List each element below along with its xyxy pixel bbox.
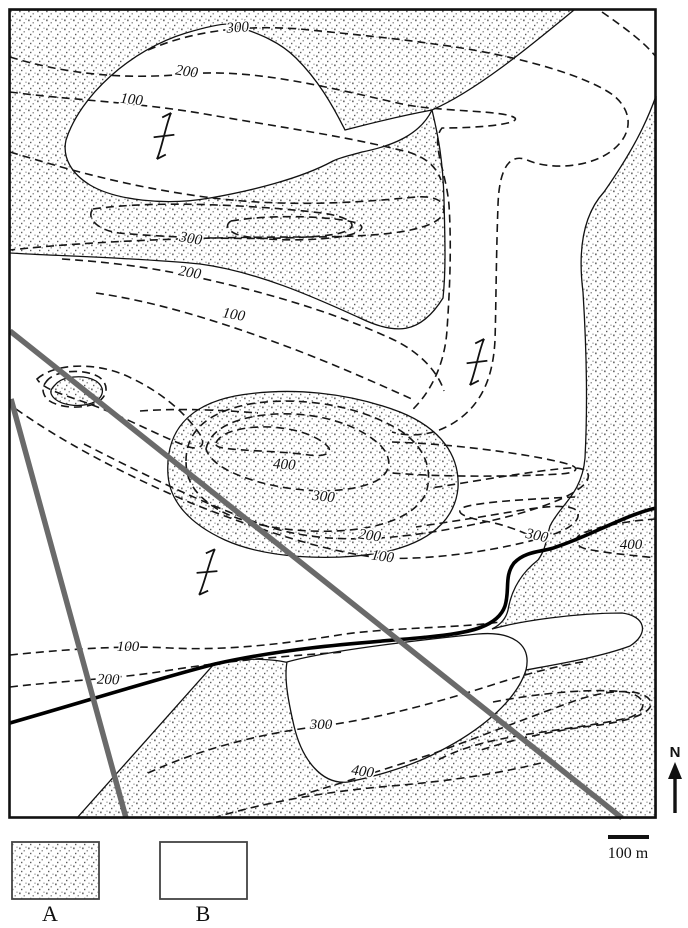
- contour-label: 100: [119, 91, 144, 110]
- north-arrow-icon: N: [668, 744, 682, 813]
- contour-label: 300: [310, 488, 336, 506]
- contour-label: 100: [370, 548, 395, 567]
- contour-label: 100: [117, 639, 140, 655]
- legend-label-a: A: [42, 901, 58, 926]
- contour-label: 200: [174, 63, 199, 82]
- geologic-map-figure: 3002001003002001004003002001003004001002…: [0, 0, 688, 928]
- contour-label: 400: [350, 763, 375, 782]
- legend: A B: [12, 842, 247, 926]
- legend-swatch-b: [160, 842, 247, 899]
- legend-swatch-a: [12, 842, 99, 899]
- scale-bar-label: 100 m: [608, 845, 649, 862]
- contour-label: 200: [97, 672, 121, 689]
- scale-bar: 100 m: [608, 837, 649, 862]
- legend-label-b: B: [196, 901, 211, 926]
- geologic-map-page: 3002001003002001004003002001003004001002…: [0, 0, 688, 928]
- contour-label: 300: [309, 717, 333, 733]
- contour-label: 300: [225, 19, 250, 37]
- contour-label: 200: [357, 527, 382, 546]
- contour-label: 400: [620, 537, 643, 553]
- contour-label: 400: [272, 456, 296, 474]
- north-label: N: [670, 744, 681, 761]
